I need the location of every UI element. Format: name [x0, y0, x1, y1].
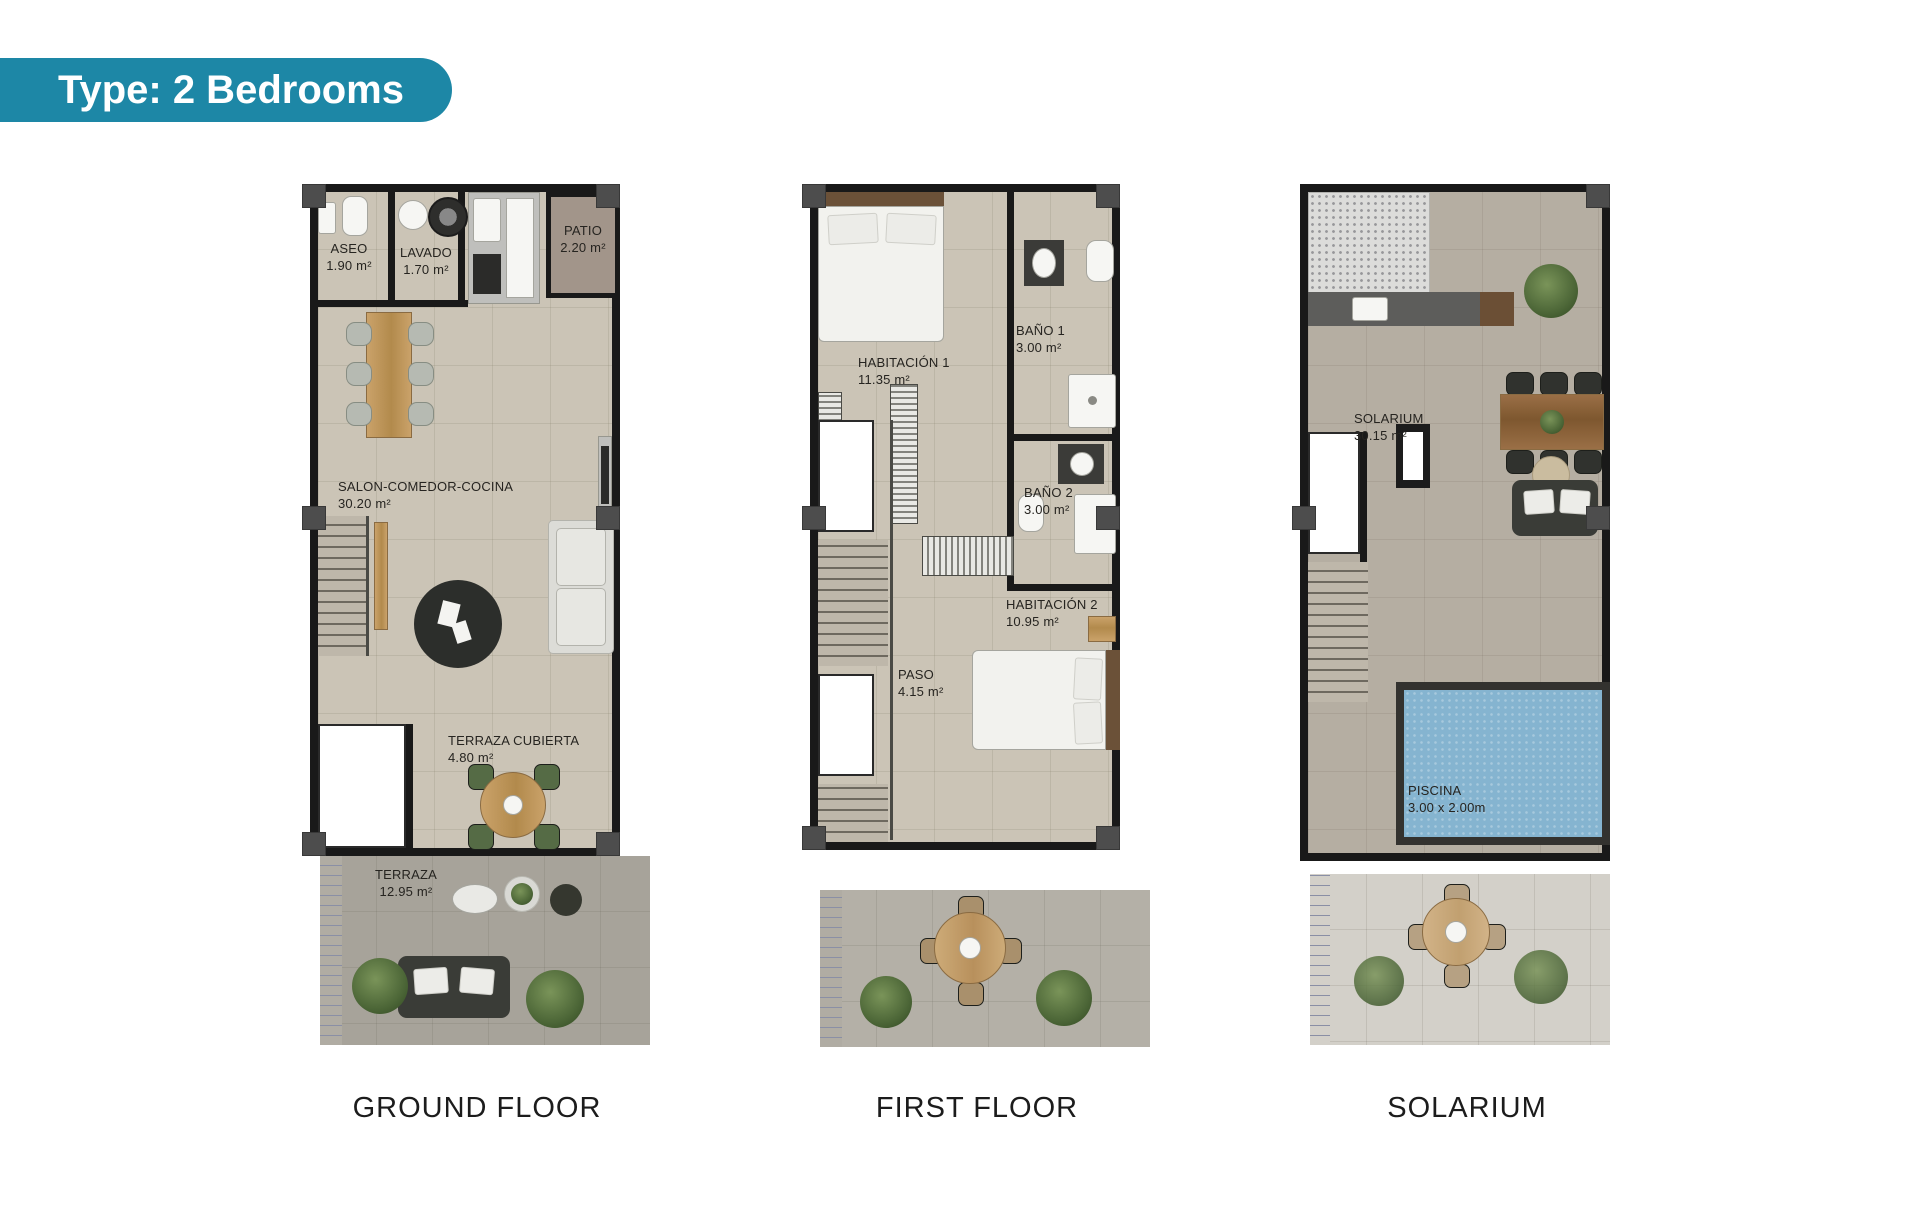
chair	[1540, 372, 1568, 396]
pillar	[1096, 506, 1120, 530]
pillow	[1073, 701, 1103, 744]
round-sink	[398, 200, 428, 230]
plant	[1354, 956, 1404, 1006]
first-floor-plan: HABITACIÓN 1 11.35 m² BAÑO 1 3.00 m² BAÑ…	[802, 184, 1152, 1047]
room-label-piscina: PISCINA 3.00 x 2.00m	[1408, 782, 1486, 816]
plant	[352, 958, 408, 1014]
stair-railing	[890, 420, 893, 840]
pillow	[1073, 657, 1103, 700]
tv	[601, 446, 609, 504]
room-label-aseo: ASEO 1.90 m²	[310, 240, 388, 274]
room-label-salon: SALON-COMEDOR-COCINA 30.20 m²	[338, 478, 513, 512]
room-label-terraza: TERRAZA 12.95 m²	[358, 866, 454, 900]
toilet	[1086, 240, 1114, 282]
room-label-patio: PATIO 2.20 m²	[550, 222, 616, 256]
cushion	[413, 967, 449, 995]
wall	[1007, 192, 1014, 442]
pillar	[1096, 184, 1120, 208]
pillar	[802, 506, 826, 530]
potted-plant	[511, 883, 533, 905]
pillar	[1096, 826, 1120, 850]
room-label-lavado: LAVADO 1.70 m²	[390, 244, 462, 278]
chair	[408, 402, 434, 426]
toilet	[342, 196, 368, 236]
wall	[406, 724, 413, 856]
pillar	[302, 184, 326, 208]
chair	[346, 362, 372, 386]
coffee-table	[452, 884, 498, 914]
dining-table	[366, 312, 412, 438]
outdoor-kitchen-counter	[1308, 292, 1480, 326]
table-centerpiece	[503, 795, 523, 815]
pillar	[1292, 506, 1316, 530]
staircase	[818, 540, 888, 666]
plant	[526, 970, 584, 1028]
staircase	[318, 516, 366, 656]
sofa-cushion	[556, 588, 606, 646]
chair	[1574, 372, 1602, 396]
pillar	[302, 832, 326, 856]
pillar	[302, 506, 326, 530]
pillar	[596, 184, 620, 208]
plant	[1524, 264, 1578, 318]
chair	[1574, 450, 1602, 474]
staircase	[1308, 562, 1368, 702]
pillar	[1586, 184, 1610, 208]
pillow	[827, 213, 879, 246]
sofa-cushion	[556, 528, 606, 586]
bench	[374, 522, 388, 630]
table-plant	[1540, 410, 1564, 434]
headboard	[1106, 650, 1120, 750]
table-centerpiece	[959, 937, 981, 959]
staircase	[818, 784, 888, 842]
chair	[408, 322, 434, 346]
chair	[408, 362, 434, 386]
wall	[1014, 584, 1120, 591]
wall	[1014, 434, 1120, 441]
headboard	[818, 192, 944, 206]
caption-first-floor: FIRST FLOOR	[802, 1092, 1152, 1125]
pillar	[802, 826, 826, 850]
chair	[346, 322, 372, 346]
type-badge: Type: 2 Bedrooms	[0, 58, 452, 122]
pillow	[885, 213, 937, 246]
pouf	[550, 884, 582, 916]
room-label-paso: PASO 4.15 m²	[898, 666, 943, 700]
plant	[1514, 950, 1568, 1004]
pool	[1396, 682, 1610, 845]
kitchen-sink	[1352, 297, 1388, 321]
room-label-terraza-cubierta: TERRAZA CUBIERTA 4.80 m²	[448, 732, 579, 766]
plant	[1036, 970, 1092, 1026]
terrace-chair	[1444, 964, 1470, 988]
terrace-trellis	[320, 856, 342, 1045]
pillar	[802, 184, 826, 208]
wall	[1360, 432, 1367, 562]
chair	[1506, 450, 1534, 474]
wardrobe	[922, 536, 1014, 576]
chair	[346, 402, 372, 426]
room-label-habitacion-2: HABITACIÓN 2 10.95 m²	[1006, 596, 1098, 630]
room-label-bano-2: BAÑO 2 3.00 m²	[1024, 484, 1073, 518]
room-label-solarium: SOLARIUM 30.15 m²	[1354, 410, 1424, 444]
solarium-plan: SOLARIUM 30.15 m² PISCINA 3.00 x 2.00m	[1292, 184, 1642, 1047]
wardrobe	[890, 384, 918, 524]
stairwell-void	[818, 674, 874, 776]
door-mat	[1480, 292, 1514, 326]
terrace-trellis	[820, 890, 842, 1047]
room-label-bano-1: BAÑO 1 3.00 m²	[1016, 322, 1065, 356]
washbasin	[1032, 248, 1056, 278]
washing-machine	[428, 197, 468, 237]
stairwell-void	[318, 724, 406, 848]
stairwell-void	[818, 420, 874, 532]
gravel-area	[1308, 192, 1430, 294]
pillar	[1586, 506, 1610, 530]
terrace-chair	[958, 982, 984, 1006]
room-label-habitacion-1: HABITACIÓN 1 11.35 m²	[858, 354, 950, 388]
plant	[860, 976, 912, 1028]
pillar	[596, 506, 620, 530]
wall	[318, 300, 468, 307]
caption-solarium: SOLARIUM	[1292, 1092, 1642, 1125]
ground-floor-plan: ASEO 1.90 m² LAVADO 1.70 m² PATIO 2.20 m…	[302, 184, 652, 1047]
floorplan-sheet: Type: 2 Bedrooms	[0, 0, 1920, 1216]
caption-ground-floor: GROUND FLOOR	[302, 1092, 652, 1125]
stair-railing	[366, 516, 369, 656]
washbasin	[1070, 452, 1094, 476]
cooktop	[473, 254, 501, 294]
table-centerpiece	[1445, 921, 1467, 943]
chair	[1506, 372, 1534, 396]
terrace-trellis	[1310, 874, 1330, 1045]
type-badge-label: Type: 2 Bedrooms	[58, 68, 404, 112]
kitchen-cabinets	[506, 198, 534, 298]
cushion	[1523, 489, 1555, 515]
cushion	[459, 967, 495, 996]
pillar	[596, 832, 620, 856]
shower-drain	[1088, 396, 1097, 405]
terrace-chair	[534, 824, 560, 850]
kitchen-sink	[473, 198, 501, 242]
stairwell-void	[1308, 432, 1360, 554]
